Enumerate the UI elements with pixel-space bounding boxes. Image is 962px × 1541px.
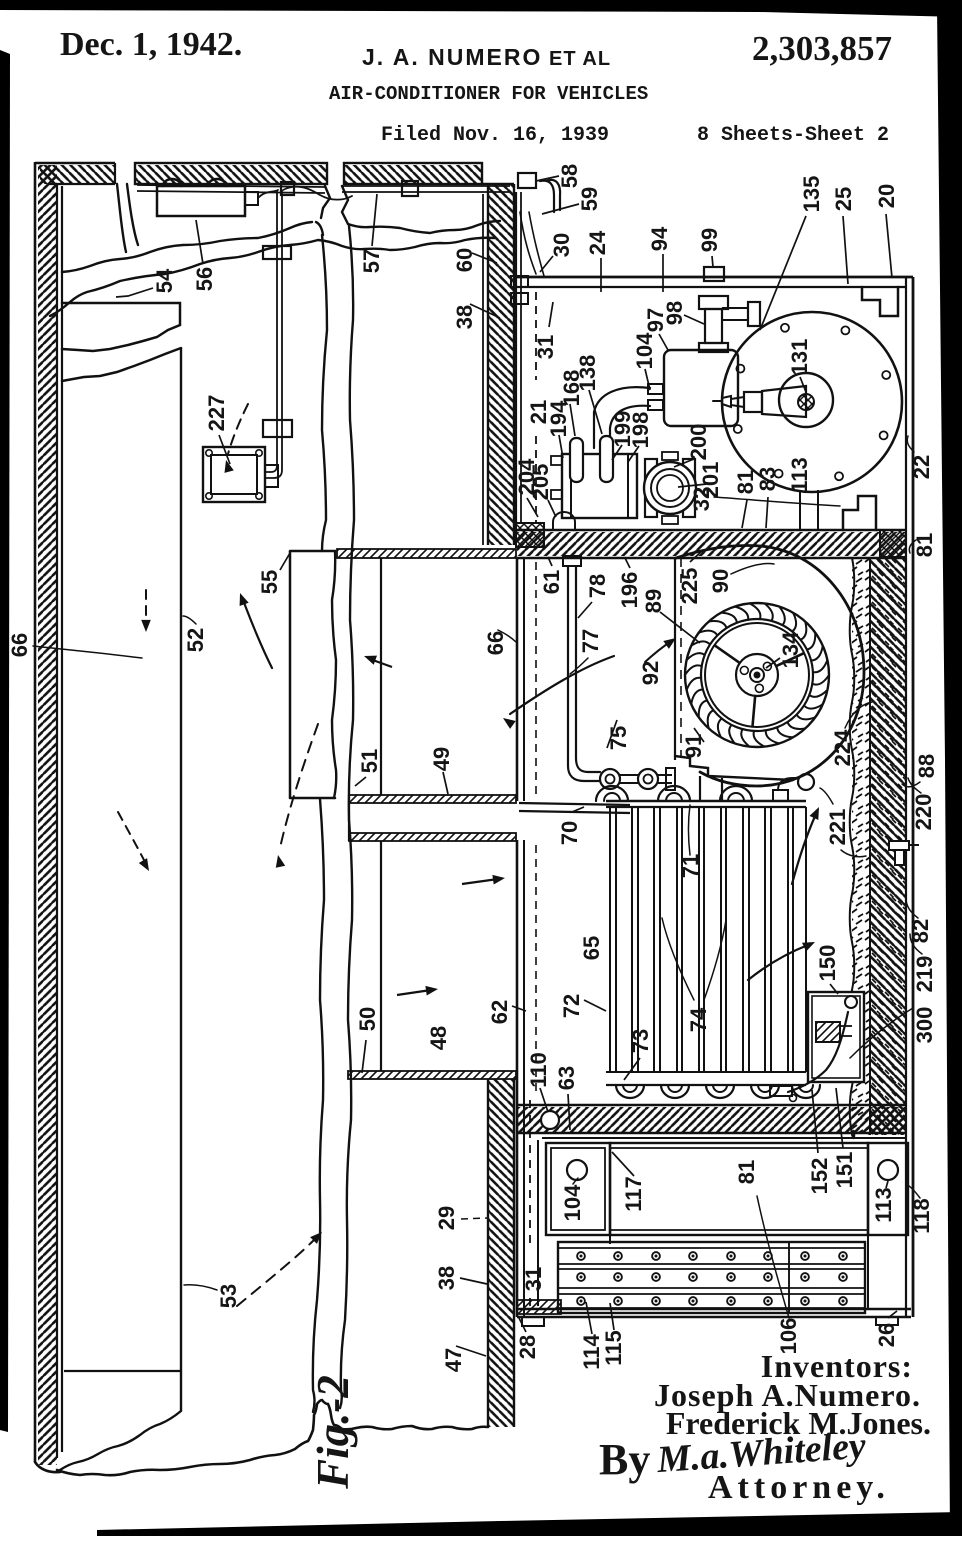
svg-text:32: 32 [689, 487, 714, 511]
svg-text:22: 22 [909, 455, 934, 479]
svg-text:51: 51 [357, 749, 382, 773]
svg-text:90: 90 [708, 569, 733, 593]
svg-text:24: 24 [585, 230, 610, 255]
svg-text:58: 58 [557, 164, 582, 188]
svg-text:113: 113 [871, 1187, 896, 1223]
svg-text:88: 88 [914, 754, 939, 778]
svg-text:91: 91 [681, 734, 706, 758]
svg-text:31: 31 [521, 1267, 546, 1291]
svg-text:Dec. 1, 1942.: Dec. 1, 1942. [60, 26, 242, 63]
svg-text:ET AL: ET AL [549, 48, 611, 70]
svg-text:131: 131 [787, 339, 812, 376]
svg-text:50: 50 [355, 1007, 380, 1031]
svg-text:152: 152 [807, 1158, 832, 1195]
svg-text:99: 99 [697, 228, 722, 252]
svg-text:135: 135 [799, 176, 824, 213]
svg-text:134: 134 [778, 631, 803, 668]
svg-text:151: 151 [832, 1152, 857, 1189]
svg-text:225: 225 [677, 568, 702, 605]
svg-text:98: 98 [662, 301, 687, 325]
svg-text:75: 75 [606, 726, 631, 750]
svg-text:J. A. NUMERO: J. A. NUMERO [362, 44, 542, 70]
svg-text:66: 66 [483, 631, 508, 655]
svg-text:196: 196 [617, 572, 642, 609]
svg-text:77: 77 [578, 629, 603, 653]
svg-text:59: 59 [577, 187, 602, 211]
svg-text:81: 81 [912, 533, 937, 557]
svg-text:113: 113 [787, 457, 812, 493]
svg-text:115: 115 [601, 1330, 626, 1366]
svg-text:118: 118 [909, 1198, 934, 1234]
svg-text:221: 221 [825, 809, 850, 846]
svg-text:94: 94 [647, 226, 672, 251]
svg-text:71: 71 [678, 854, 703, 878]
svg-text:49: 49 [429, 747, 454, 771]
svg-text:150: 150 [815, 945, 840, 982]
svg-text:20: 20 [874, 184, 899, 208]
svg-text:26: 26 [874, 1323, 899, 1347]
svg-text:29: 29 [434, 1206, 459, 1230]
svg-text:70: 70 [557, 821, 582, 845]
svg-text:110: 110 [526, 1052, 551, 1088]
svg-text:Filed Nov. 16, 1939: Filed Nov. 16, 1939 [381, 124, 609, 147]
svg-text:220: 220 [911, 794, 936, 831]
svg-text:104: 104 [632, 332, 657, 369]
svg-text:227: 227 [204, 395, 229, 432]
svg-text:73: 73 [628, 1029, 653, 1053]
svg-text:Attorney.: Attorney. [708, 1469, 890, 1506]
svg-text:47: 47 [441, 1348, 466, 1372]
svg-text:83: 83 [755, 467, 780, 491]
svg-text:62: 62 [487, 1000, 512, 1024]
svg-text:Fig.-2: Fig.-2 [308, 1375, 358, 1490]
svg-text:74: 74 [686, 1007, 711, 1032]
svg-text:60: 60 [452, 248, 477, 272]
svg-text:78: 78 [585, 574, 610, 598]
svg-text:57: 57 [359, 249, 384, 273]
svg-text:117: 117 [621, 1176, 646, 1212]
svg-text:63: 63 [554, 1066, 579, 1090]
svg-text:219: 219 [912, 956, 937, 993]
svg-text:38: 38 [452, 305, 477, 329]
svg-text:72: 72 [559, 994, 584, 1018]
svg-text:66: 66 [7, 633, 32, 657]
svg-text:By: By [599, 1435, 650, 1484]
svg-text:198: 198 [628, 412, 653, 449]
svg-text:30: 30 [549, 233, 574, 257]
svg-text:300: 300 [912, 1007, 937, 1044]
svg-text:82: 82 [908, 919, 933, 943]
svg-text:54: 54 [152, 268, 177, 293]
svg-text:61: 61 [539, 570, 564, 594]
svg-text:AIR-CONDITIONER FOR VEHICLES: AIR-CONDITIONER FOR VEHICLES [329, 83, 648, 105]
svg-text:53: 53 [216, 1284, 241, 1308]
svg-text:92: 92 [638, 661, 663, 685]
svg-text:138: 138 [575, 355, 600, 392]
svg-text:65: 65 [579, 936, 604, 960]
svg-text:8 Sheets-Sheet 2: 8 Sheets-Sheet 2 [697, 124, 889, 147]
svg-text:200: 200 [686, 424, 711, 461]
svg-text:25: 25 [831, 187, 856, 211]
svg-text:2,303,857: 2,303,857 [752, 29, 892, 68]
svg-text:55: 55 [257, 570, 282, 594]
svg-text:56: 56 [192, 267, 217, 291]
svg-text:205: 205 [528, 464, 553, 501]
svg-text:38: 38 [434, 1266, 459, 1290]
svg-text:81: 81 [734, 1160, 759, 1184]
svg-text:52: 52 [183, 628, 208, 652]
svg-text:89: 89 [641, 589, 666, 613]
svg-text:224: 224 [830, 729, 855, 766]
svg-text:194: 194 [546, 400, 571, 437]
svg-text:104: 104 [560, 1184, 585, 1221]
svg-text:48: 48 [426, 1026, 451, 1050]
svg-text:28: 28 [515, 1335, 540, 1359]
svg-text:31: 31 [533, 335, 558, 359]
